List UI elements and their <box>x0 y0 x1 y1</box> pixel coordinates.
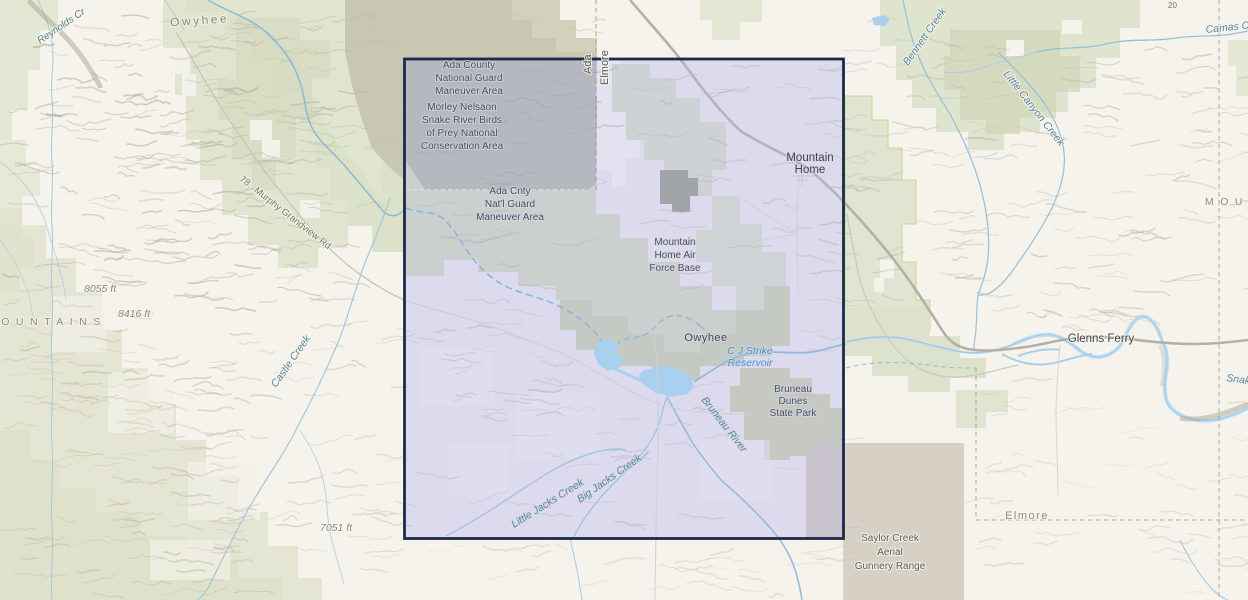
svg-text:MOUNTAINS: MOUNTAINS <box>0 316 107 328</box>
svg-text:20: 20 <box>1168 1 1177 10</box>
svg-text:Elmore: Elmore <box>599 50 611 85</box>
svg-text:Ada: Ada <box>582 54 594 74</box>
svg-text:Ada CountyNational GuardManeuv: Ada CountyNational GuardManeuver Area <box>435 60 503 97</box>
svg-text:Owyhee: Owyhee <box>684 332 727 344</box>
svg-text:8416 ft: 8416 ft <box>118 308 151 320</box>
svg-text:MountainHome AirForce Base: MountainHome AirForce Base <box>649 237 701 274</box>
svg-text:8055 ft: 8055 ft <box>84 283 117 295</box>
svg-text:Elmore: Elmore <box>1005 510 1049 522</box>
svg-text:7051 ft: 7051 ft <box>320 522 353 534</box>
svg-text:MOUNT: MOUNT <box>1205 196 1248 208</box>
svg-text:Glenns Ferry: Glenns Ferry <box>1068 333 1135 345</box>
svg-text:C J StrikeReservoir: C J StrikeReservoir <box>727 345 773 369</box>
